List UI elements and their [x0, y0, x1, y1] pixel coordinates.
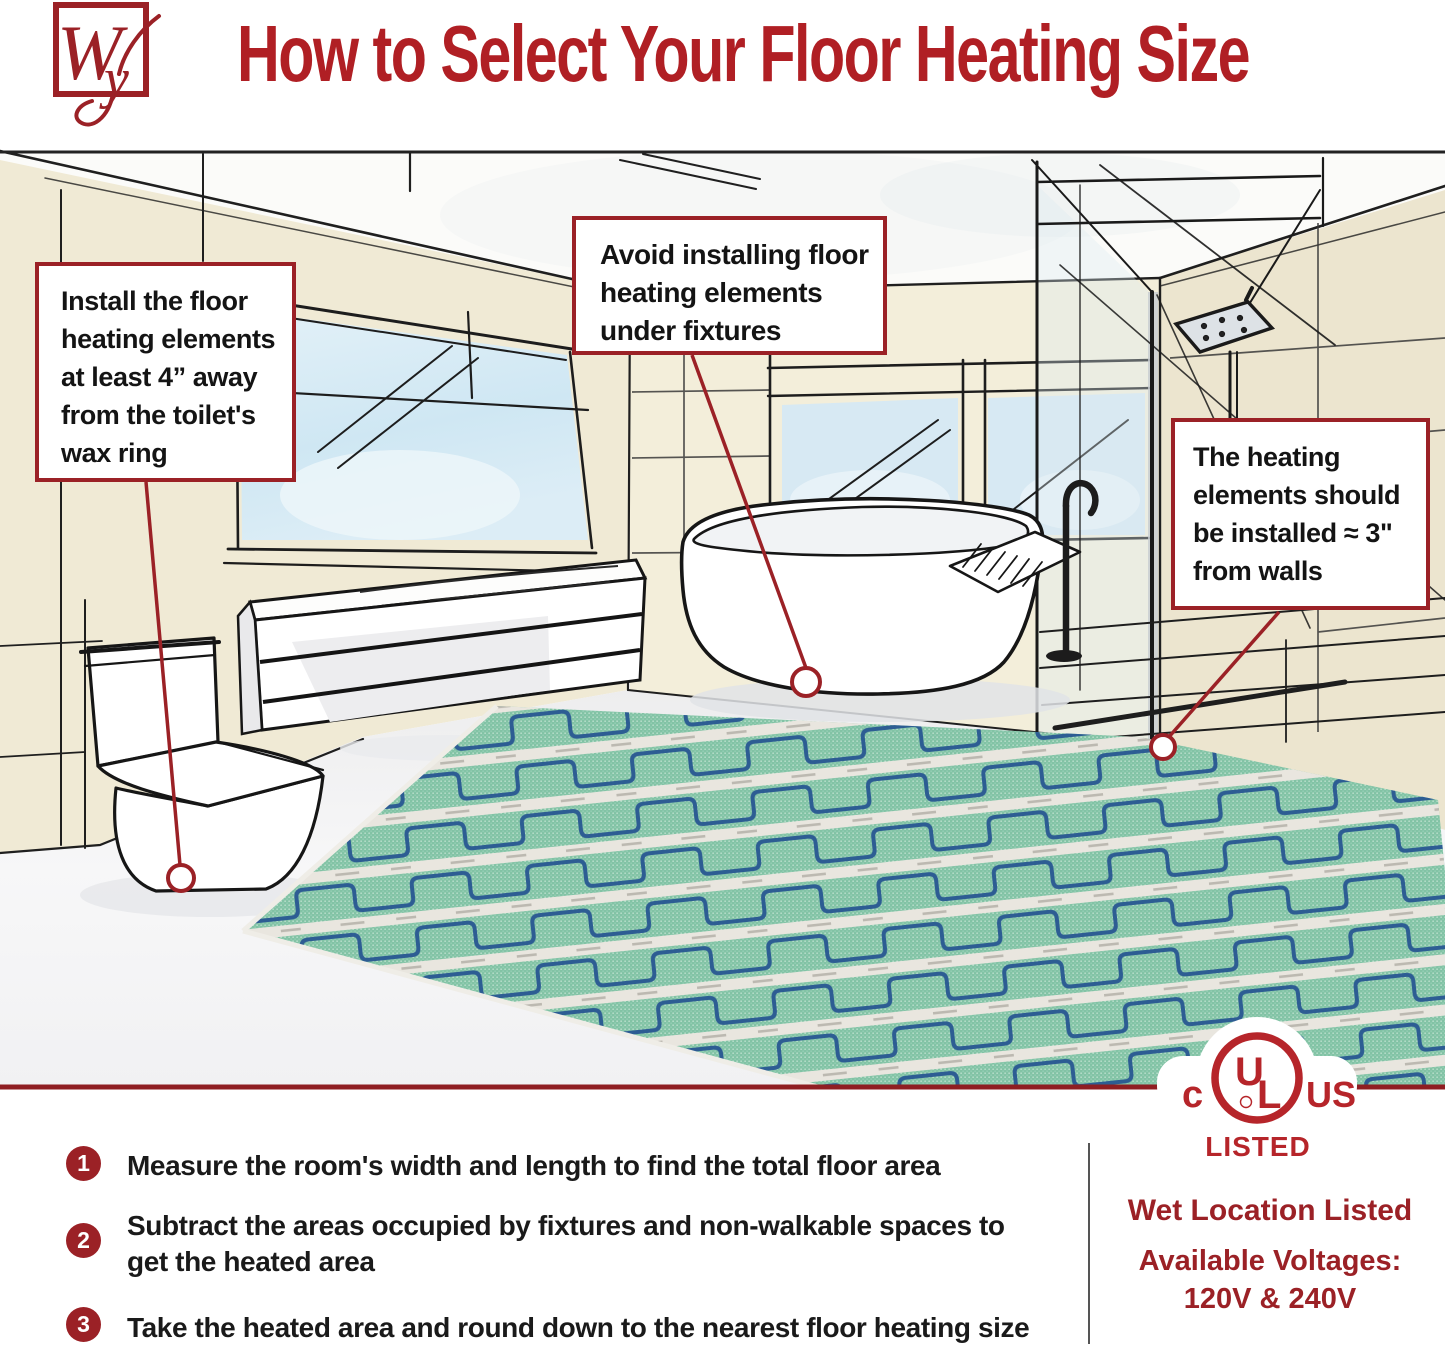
svg-text:LISTED: LISTED [1205, 1131, 1311, 1162]
svg-text:c: c [1182, 1074, 1203, 1116]
svg-text:US: US [1306, 1074, 1356, 1115]
svg-text:L: L [1257, 1073, 1281, 1117]
